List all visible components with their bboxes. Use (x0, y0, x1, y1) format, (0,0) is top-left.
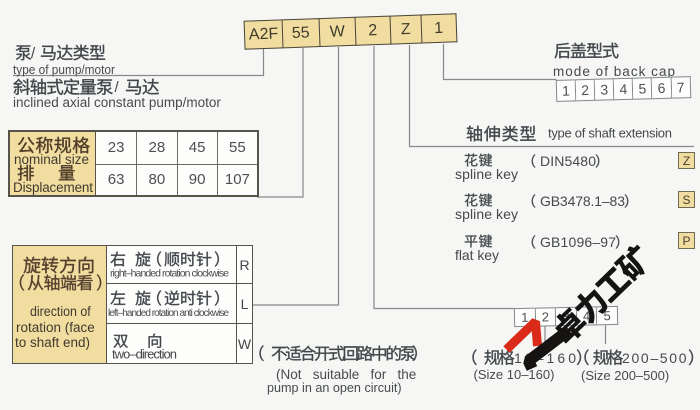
svg-text:10–160: 10–160 (514, 352, 576, 366)
svg-text:type of shaft extension: type of shaft extension (548, 127, 672, 140)
svg-text:GB1096–97: GB1096–97 (540, 236, 616, 250)
svg-text:GB3478.1–83: GB3478.1–83 (540, 195, 625, 209)
svg-text:DIN5480: DIN5480 (540, 155, 596, 169)
svg-text:left–handed rotation anti cloc: left–handed rotation anti clockwise (108, 308, 229, 318)
svg-text:flat key: flat key (455, 249, 499, 263)
svg-text:two–direction: two–direction (112, 348, 177, 361)
svg-text:spline key: spline key (455, 168, 518, 182)
svg-text:spline key: spline key (455, 208, 518, 222)
svg-text:Displacement: Displacement (13, 181, 93, 195)
svg-text:right–handed rotation clockwis: right–handed rotation clockwise (110, 268, 229, 279)
svg-text:200–500: 200–500 (622, 352, 686, 366)
